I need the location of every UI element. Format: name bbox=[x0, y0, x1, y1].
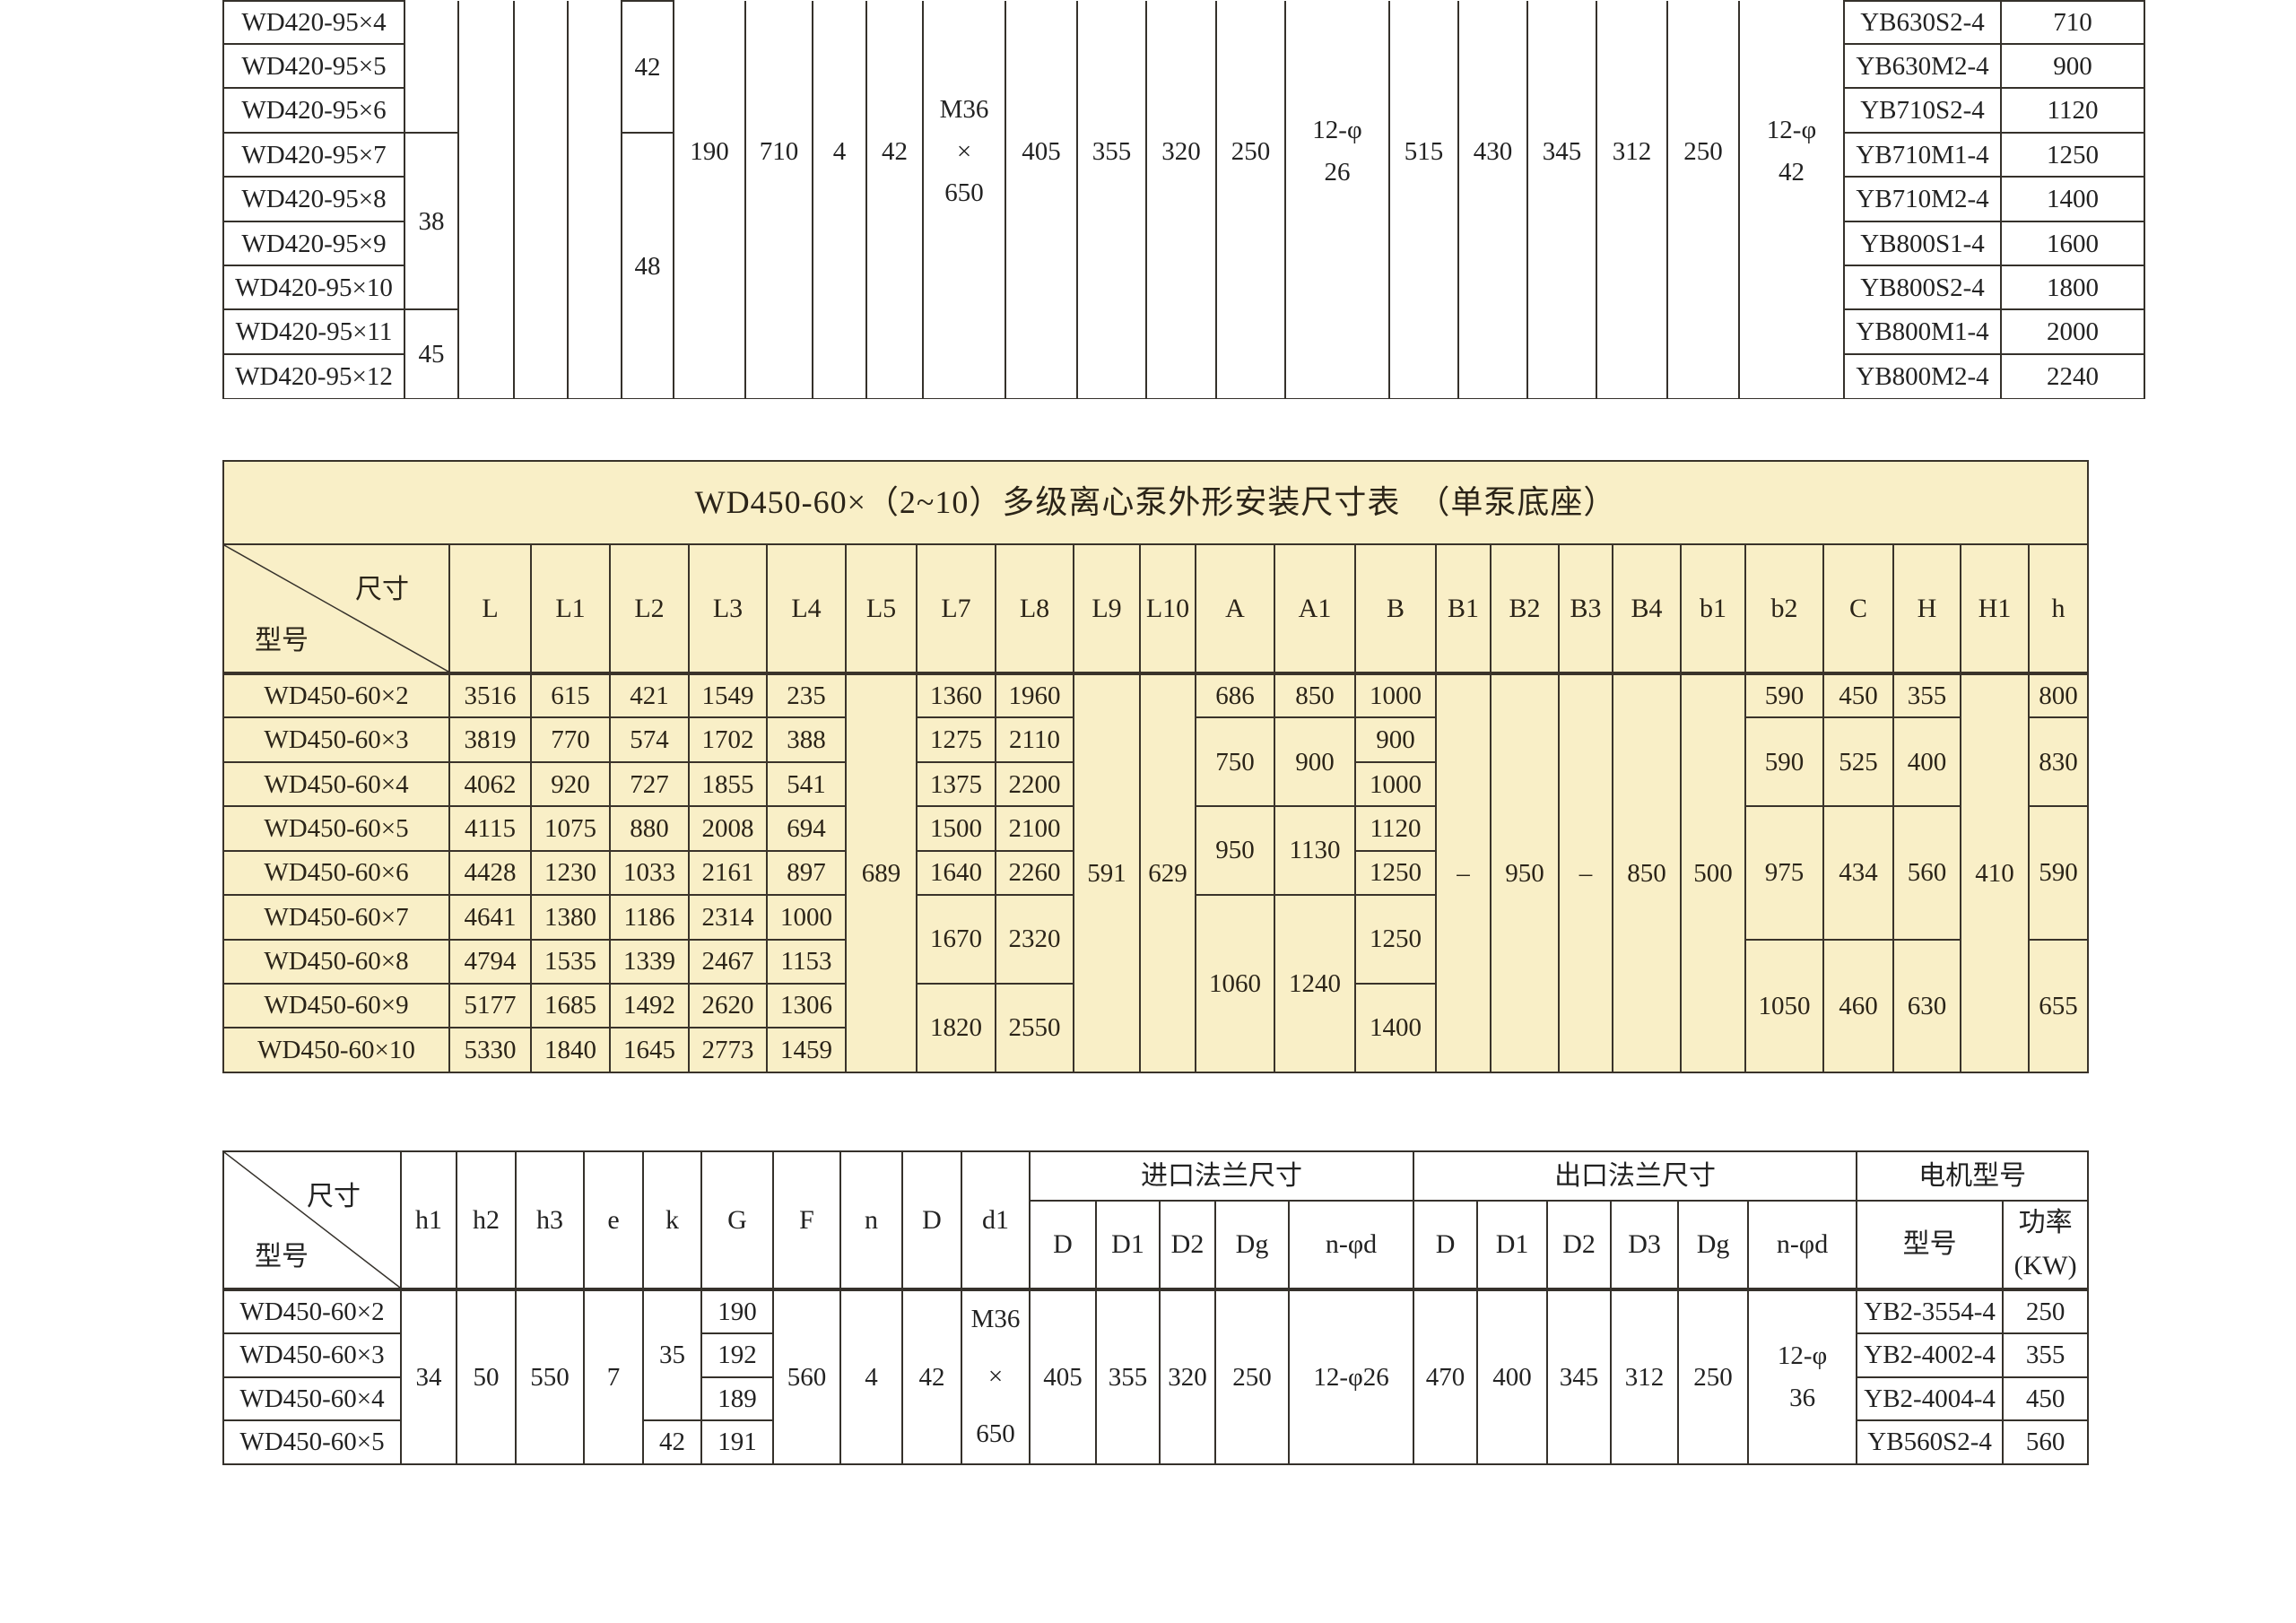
cell-text: 2260 bbox=[1009, 852, 1061, 893]
col-header: L3 bbox=[689, 544, 767, 673]
cell: 3819 bbox=[449, 717, 531, 762]
cell: 2773 bbox=[689, 1028, 767, 1072]
cell: 2100 bbox=[996, 806, 1074, 851]
cell-text: 410 bbox=[1975, 853, 2014, 894]
cell-text: YB800S2-4 bbox=[1860, 267, 1985, 308]
power-cell: 2240 bbox=[2001, 354, 2144, 399]
cell: 355 bbox=[1893, 673, 1961, 717]
cell-text: B1 bbox=[1448, 587, 1479, 630]
cell-text: 1645 bbox=[623, 1029, 675, 1071]
power-cell: 900 bbox=[2001, 44, 2144, 88]
cell-text: 190 bbox=[690, 131, 729, 172]
cell-text: WD450-60×10 bbox=[257, 1029, 415, 1071]
cell-text: B4 bbox=[1631, 587, 1662, 630]
model-cell: WD450-60×2 bbox=[223, 673, 449, 717]
cell-text: 4641 bbox=[465, 897, 517, 938]
cell-text: WD450-60×（2~10）多级离心泵外形安装尺寸表 （单泵底座） bbox=[695, 477, 1617, 529]
cell-text: Dg bbox=[1236, 1223, 1269, 1266]
motor-model-cell: YB800M1-4 bbox=[1844, 309, 2001, 354]
cell-text: 312 bbox=[1613, 131, 1652, 172]
cell-text: k bbox=[665, 1199, 679, 1242]
cell: 2110 bbox=[996, 717, 1074, 762]
cell-text: B bbox=[1387, 587, 1405, 630]
cell-text: 1800 bbox=[2047, 267, 2099, 308]
cell-text: 1820 bbox=[930, 1007, 982, 1048]
cell-text: 388 bbox=[787, 719, 826, 760]
cell-text: YB2-4004-4 bbox=[1864, 1378, 1996, 1419]
cell-text: 560 bbox=[2026, 1421, 2066, 1462]
cell-text: L3 bbox=[713, 587, 743, 630]
cell-text: 12-φ26 bbox=[1312, 109, 1361, 193]
cell-text: 1275 bbox=[930, 719, 982, 760]
cell: 4794 bbox=[449, 940, 531, 984]
cell: 694 bbox=[767, 806, 846, 851]
cell-text: 191 bbox=[717, 1421, 757, 1462]
cell-text: WD420-95×10 bbox=[235, 267, 393, 308]
cell: 4115 bbox=[449, 806, 531, 851]
cell: 1153 bbox=[767, 940, 846, 984]
cell-text: B2 bbox=[1509, 587, 1540, 630]
cell-text: 541 bbox=[787, 764, 826, 805]
col-header: L1 bbox=[531, 544, 610, 673]
model-cell: WD450-60×4 bbox=[223, 762, 449, 806]
cell-text: L bbox=[482, 587, 498, 630]
cell-text: 1375 bbox=[930, 764, 982, 805]
cell: 1186 bbox=[610, 895, 689, 940]
cell-text: 42 bbox=[635, 47, 661, 88]
data-table: WD420-95×442190710442M36×650405355320250… bbox=[222, 0, 2145, 399]
power-cell: 355 bbox=[2003, 1333, 2088, 1376]
motor-model-cell: YB2-4004-4 bbox=[1857, 1377, 2003, 1420]
cell-text: 3819 bbox=[465, 719, 517, 760]
motor-model-cell: YB800S1-4 bbox=[1844, 221, 2001, 265]
col-header: 型号 bbox=[1857, 1201, 2003, 1289]
cell: 388 bbox=[767, 717, 846, 762]
inlet-D-cell: 405 bbox=[1005, 1, 1077, 399]
cell-text: 235 bbox=[787, 675, 826, 716]
inlet-Dg-cell: 250 bbox=[1216, 1, 1285, 399]
cell: 897 bbox=[767, 851, 846, 894]
model-cell: WD420-95×9 bbox=[223, 221, 404, 265]
model-cell: WD450-60×6 bbox=[223, 851, 449, 894]
cell-text: M36×650 bbox=[940, 89, 989, 213]
cell-text: 2000 bbox=[2047, 311, 2099, 352]
n-cell: 4 bbox=[813, 1, 866, 399]
model-cell: WD450-60×9 bbox=[223, 984, 449, 1028]
n-cell: 4 bbox=[840, 1289, 902, 1464]
G-cell: 190 bbox=[701, 1289, 773, 1333]
col-header: B bbox=[1355, 544, 1436, 673]
cell-text: 400 bbox=[1908, 742, 1947, 783]
motor-group-header: 电机型号 bbox=[1857, 1151, 2088, 1201]
cell-text: 1186 bbox=[624, 897, 675, 938]
cell: 5330 bbox=[449, 1028, 531, 1072]
model-cell: WD420-95×7 bbox=[223, 133, 404, 177]
cell-text: YB630S2-4 bbox=[1860, 2, 1985, 43]
cell-text: YB710M2-4 bbox=[1856, 178, 1988, 220]
cell-text: 629 bbox=[1148, 853, 1187, 894]
cell-text: 型号 bbox=[1903, 1223, 1957, 1266]
cell: 4641 bbox=[449, 895, 531, 940]
cell-text: 515 bbox=[1405, 131, 1444, 172]
model-cell: WD420-95×8 bbox=[223, 177, 404, 221]
cell-text: 1670 bbox=[930, 918, 982, 959]
power-cell: 450 bbox=[2003, 1377, 2088, 1420]
cell-text: D1 bbox=[1496, 1223, 1529, 1266]
cell-text: 2314 bbox=[702, 897, 754, 938]
h3-cell: 550 bbox=[516, 1289, 584, 1464]
cell-text: D bbox=[1053, 1223, 1073, 1266]
cell-text: WD420-95×7 bbox=[241, 135, 386, 176]
cell-text: H1 bbox=[1979, 587, 2012, 630]
power-cell: 1250 bbox=[2001, 133, 2144, 177]
col-header: b2 bbox=[1745, 544, 1823, 673]
power-cell: 2000 bbox=[2001, 309, 2144, 354]
col-header: D3 bbox=[1611, 1201, 1678, 1289]
cell: 1645 bbox=[610, 1028, 689, 1072]
cell-text: 710 bbox=[2053, 2, 2092, 43]
cell-text: 189 bbox=[717, 1378, 757, 1419]
cell-text: 2467 bbox=[702, 941, 754, 982]
cell-text: 900 bbox=[1376, 719, 1415, 760]
cell-text: 900 bbox=[1295, 742, 1335, 783]
cell-text: 1050 bbox=[1759, 985, 1811, 1027]
H1-cell: 410 bbox=[1961, 673, 2029, 1072]
col-header: D bbox=[1030, 1201, 1096, 1289]
outlet-D-cell: 515 bbox=[1389, 1, 1458, 399]
col-header: 功率(KW) bbox=[2003, 1201, 2088, 1289]
cell-text: 48 bbox=[635, 246, 661, 287]
col-header: D bbox=[902, 1151, 961, 1289]
cell-text: 560 bbox=[1908, 852, 1947, 893]
cell-text: 进口法兰尺寸 bbox=[1141, 1155, 1302, 1198]
k-cell: 35 bbox=[643, 1289, 701, 1420]
outlet-D2-cell: 345 bbox=[1527, 1, 1596, 399]
cell-text: WD450-60×5 bbox=[239, 1421, 384, 1462]
col-header: L2 bbox=[610, 544, 689, 673]
inlet-flange-group-header: 进口法兰尺寸 bbox=[1030, 1151, 1413, 1201]
inlet-D2-cell: 320 bbox=[1160, 1289, 1215, 1464]
cell-text: 4794 bbox=[465, 941, 517, 982]
cell-text: 2550 bbox=[1009, 1007, 1061, 1048]
col-header: B3 bbox=[1559, 544, 1613, 673]
cell-text: L8 bbox=[1020, 587, 1049, 630]
cell-text: b2 bbox=[1771, 587, 1798, 630]
model-cell: WD450-60×2 bbox=[223, 1289, 401, 1333]
outlet-Dg-cell: 250 bbox=[1678, 1289, 1748, 1464]
power-cell: 1400 bbox=[2001, 177, 2144, 221]
cell-text: 45 bbox=[419, 334, 445, 375]
cell: 1685 bbox=[531, 984, 610, 1028]
outlet-D1-cell: 400 bbox=[1477, 1289, 1547, 1464]
cell-text: WD450-60×2 bbox=[264, 675, 408, 716]
cell: 400 bbox=[1893, 717, 1961, 806]
cell-text: 2110 bbox=[1009, 719, 1060, 760]
model-cell: WD420-95×6 bbox=[223, 88, 404, 133]
cell-text: 1250 bbox=[1370, 918, 1422, 959]
motor-model-cell: YB800S2-4 bbox=[1844, 265, 2001, 309]
outlet-D1-cell: 430 bbox=[1458, 1, 1527, 399]
cell-text: 560 bbox=[787, 1357, 827, 1398]
cell: 460 bbox=[1823, 940, 1893, 1072]
col-header: G bbox=[701, 1151, 773, 1289]
col-header: L7 bbox=[917, 544, 996, 673]
cell: 4428 bbox=[449, 851, 531, 894]
cell-text: 4115 bbox=[465, 808, 516, 849]
cell: 1250 bbox=[1355, 851, 1436, 894]
outlet-D-cell: 470 bbox=[1413, 1289, 1477, 1464]
inlet-Dg-cell: 250 bbox=[1215, 1289, 1289, 1464]
cell-text: h2 bbox=[473, 1199, 500, 1242]
cell-text: YB560S2-4 bbox=[1867, 1421, 1992, 1462]
cell-text: n bbox=[865, 1199, 878, 1242]
col-header: L5 bbox=[846, 544, 917, 673]
col-header: h bbox=[2029, 544, 2088, 673]
cell-text: 3516 bbox=[465, 675, 517, 716]
cell-text: 590 bbox=[1765, 742, 1805, 783]
cell-text: 710 bbox=[760, 131, 799, 172]
cell-text: D2 bbox=[1171, 1223, 1205, 1266]
col-header: L9 bbox=[1074, 544, 1140, 673]
cell-text: 4062 bbox=[465, 764, 517, 805]
corner-label-model: 型号 bbox=[255, 1234, 309, 1273]
col-header: D2 bbox=[1160, 1201, 1215, 1289]
cell: 630 bbox=[1893, 940, 1961, 1072]
cell-text: h bbox=[2052, 587, 2066, 630]
motor-model-cell: YB2-4002-4 bbox=[1857, 1333, 2003, 1376]
cell: 525 bbox=[1823, 717, 1893, 806]
cell-text: WD450-60×5 bbox=[264, 808, 408, 849]
cell-text: WD450-60×4 bbox=[264, 764, 408, 805]
cell-text: 2161 bbox=[702, 852, 754, 893]
cell: 830 bbox=[2029, 717, 2088, 806]
col-header: b1 bbox=[1681, 544, 1745, 673]
cell-text: 590 bbox=[1765, 675, 1805, 716]
cell-text: WD450-60×4 bbox=[239, 1378, 384, 1419]
cell-text: e bbox=[607, 1199, 619, 1242]
model-cell: WD450-60×5 bbox=[223, 1420, 401, 1463]
cell-text: 355 bbox=[1092, 131, 1132, 172]
G-cell: 190 bbox=[674, 1, 745, 399]
col-header: C bbox=[1823, 544, 1893, 673]
corner-label-model: 型号 bbox=[255, 618, 309, 657]
model-cell: WD450-60×3 bbox=[223, 717, 449, 762]
cell-text: 4 bbox=[865, 1357, 878, 1398]
corner-header-cell: 尺寸型号 bbox=[223, 1151, 401, 1289]
cell-text: 出口法兰尺寸 bbox=[1554, 1155, 1716, 1198]
cell-text: 1400 bbox=[2047, 178, 2099, 220]
inlet-nphid-cell: 12-φ26 bbox=[1285, 1, 1389, 399]
cell-text: 1075 bbox=[544, 808, 596, 849]
power-cell: 1120 bbox=[2001, 88, 2144, 133]
cell: 2320 bbox=[996, 895, 1074, 984]
cell-text: WD450-60×3 bbox=[264, 719, 408, 760]
cell: 900 bbox=[1355, 717, 1436, 762]
cell-text: h3 bbox=[536, 1199, 563, 1242]
cell-text: 2200 bbox=[1009, 764, 1061, 805]
cell: 1380 bbox=[531, 895, 610, 940]
cell-text: YB800S1-4 bbox=[1860, 223, 1985, 265]
col-header: D1 bbox=[1477, 1201, 1547, 1289]
cell-text: 1400 bbox=[1370, 1007, 1422, 1048]
cell-text: 1459 bbox=[780, 1029, 832, 1071]
motor-model-cell: YB630S2-4 bbox=[1844, 1, 2001, 44]
cell-text: 470 bbox=[1426, 1357, 1465, 1398]
model-cell: WD420-95×4 bbox=[223, 1, 404, 44]
power-cell: 1800 bbox=[2001, 265, 2144, 309]
cell-text: 630 bbox=[1908, 985, 1947, 1027]
cell: 1240 bbox=[1274, 895, 1355, 1072]
col-header: Dg bbox=[1215, 1201, 1289, 1289]
cell-text: WD420-95×4 bbox=[241, 2, 386, 43]
col-header: B2 bbox=[1491, 544, 1559, 673]
cell-text: b1 bbox=[1700, 587, 1726, 630]
cell-text: WD450-60×9 bbox=[264, 985, 408, 1026]
cell-text: 250 bbox=[1231, 131, 1271, 172]
cell-text: 1549 bbox=[702, 675, 754, 716]
cell-text: 5177 bbox=[465, 985, 517, 1026]
cell-text: 1060 bbox=[1209, 963, 1261, 1004]
cell-text: 2008 bbox=[702, 808, 754, 849]
cell: 900 bbox=[1274, 717, 1355, 806]
col-header: n-φd bbox=[1748, 1201, 1857, 1289]
cell: 2260 bbox=[996, 851, 1074, 894]
middle-table-title: WD450-60×（2~10）多级离心泵外形安装尺寸表 （单泵底座） bbox=[223, 461, 2088, 544]
e-cell: 7 bbox=[584, 1289, 643, 1464]
cell: 2467 bbox=[689, 940, 767, 984]
outlet-flange-group-header: 出口法兰尺寸 bbox=[1413, 1151, 1857, 1201]
cell: 450 bbox=[1823, 673, 1893, 717]
model-cell: WD420-95×5 bbox=[223, 44, 404, 88]
corner-label-dimension: 尺寸 bbox=[355, 567, 409, 606]
cell-text: 12-φ26 bbox=[1313, 1357, 1388, 1398]
cell-text: 1855 bbox=[702, 764, 754, 805]
cell: 2550 bbox=[996, 984, 1074, 1072]
cell: 850 bbox=[1274, 673, 1355, 717]
cell: 1855 bbox=[689, 762, 767, 806]
diagonal-divider-line bbox=[224, 1152, 400, 1288]
cell-text: 1240 bbox=[1289, 963, 1341, 1004]
model-cell: WD450-60×8 bbox=[223, 940, 449, 984]
d1-cell: M36×650 bbox=[961, 1289, 1030, 1464]
col-header: n-φd bbox=[1289, 1201, 1413, 1289]
cell: 1130 bbox=[1274, 806, 1355, 894]
cell-text: 1339 bbox=[623, 941, 675, 982]
cell-text: 1120 bbox=[2048, 90, 2099, 131]
k-cell: 42 bbox=[622, 1, 674, 133]
cell-text: H bbox=[1918, 587, 1937, 630]
outlet-D2-cell: 345 bbox=[1547, 1289, 1611, 1464]
h2-cell bbox=[458, 1, 514, 399]
G-cell: 189 bbox=[701, 1377, 773, 1420]
cell: 727 bbox=[610, 762, 689, 806]
cell-text: 4428 bbox=[465, 852, 517, 893]
cell: 1820 bbox=[917, 984, 996, 1072]
cell-text: 590 bbox=[2039, 852, 2078, 893]
G-cell: 191 bbox=[701, 1420, 773, 1463]
cell: 1033 bbox=[610, 851, 689, 894]
power-cell: 560 bbox=[2003, 1420, 2088, 1463]
motor-model-cell: YB710M2-4 bbox=[1844, 177, 2001, 221]
B3-cell: – bbox=[1559, 673, 1613, 1072]
cell: 1000 bbox=[767, 895, 846, 940]
cell-text: 355 bbox=[2026, 1334, 2066, 1376]
cell-text: – bbox=[1579, 853, 1593, 894]
cell-text: 525 bbox=[1839, 742, 1878, 783]
cell: 1275 bbox=[917, 717, 996, 762]
power-cell: 710 bbox=[2001, 1, 2144, 44]
cell: 1000 bbox=[1355, 673, 1436, 717]
model-cell: WD420-95×10 bbox=[223, 265, 404, 309]
cell: 1640 bbox=[917, 851, 996, 894]
cell-text: L5 bbox=[866, 587, 896, 630]
cell: 1050 bbox=[1745, 940, 1823, 1072]
cell-text: D bbox=[922, 1199, 942, 1242]
cell-text: WD450-60×7 bbox=[264, 897, 408, 938]
cell-text: 450 bbox=[2026, 1378, 2066, 1419]
cell: 560 bbox=[1893, 806, 1961, 939]
L9-cell: 591 bbox=[1074, 673, 1140, 1072]
k-cell: 42 bbox=[643, 1420, 701, 1463]
col-header: L10 bbox=[1140, 544, 1196, 673]
cell: 434 bbox=[1823, 806, 1893, 939]
h3-cell bbox=[514, 1, 568, 399]
cell-text: 34 bbox=[416, 1357, 442, 1398]
cell: 1492 bbox=[610, 984, 689, 1028]
cell-text: L10 bbox=[1146, 587, 1189, 630]
cell: 1250 bbox=[1355, 895, 1436, 984]
cell-text: D3 bbox=[1628, 1223, 1661, 1266]
cell-text: WD420-95×12 bbox=[235, 356, 393, 397]
wd420-95-dimension-table-continued: WD420-95×442190710442M36×650405355320250… bbox=[222, 0, 2151, 399]
e-cell bbox=[568, 1, 622, 399]
col-header: A bbox=[1196, 544, 1274, 673]
cell-text: 897 bbox=[787, 852, 826, 893]
cell: 800 bbox=[2029, 673, 2088, 717]
cell-text: L1 bbox=[555, 587, 585, 630]
cell: 1535 bbox=[531, 940, 610, 984]
table-row: WD450-60×2351661542115492356891360196059… bbox=[223, 673, 2088, 717]
cell-text: n-φd bbox=[1777, 1223, 1828, 1266]
cell: 1339 bbox=[610, 940, 689, 984]
cell-text: 1033 bbox=[623, 852, 675, 893]
cell-text: 950 bbox=[1505, 853, 1544, 894]
cell-text: 694 bbox=[787, 808, 826, 849]
model-cell: WD450-60×5 bbox=[223, 806, 449, 851]
cell-text: D1 bbox=[1111, 1223, 1144, 1266]
cell: 1360 bbox=[917, 673, 996, 717]
cell: 975 bbox=[1745, 806, 1823, 939]
B4-cell: 850 bbox=[1613, 673, 1681, 1072]
cell-text: 1000 bbox=[780, 897, 832, 938]
col-header: k bbox=[643, 1151, 701, 1289]
cell-text: 686 bbox=[1215, 675, 1255, 716]
cell-text: YB710S2-4 bbox=[1860, 90, 1985, 131]
cell-text: 12-φ42 bbox=[1767, 109, 1816, 193]
cell-text: 1380 bbox=[544, 897, 596, 938]
cell: 2314 bbox=[689, 895, 767, 940]
F-cell: 710 bbox=[745, 1, 813, 399]
cell-text: L2 bbox=[634, 587, 664, 630]
cell-text: G bbox=[727, 1199, 747, 1242]
cell: 1375 bbox=[917, 762, 996, 806]
cell-text: 1600 bbox=[2047, 223, 2099, 265]
cell: 3516 bbox=[449, 673, 531, 717]
cell-text: d1 bbox=[982, 1199, 1009, 1242]
corner-header-cell: 尺寸型号 bbox=[223, 544, 449, 673]
D-cell: 42 bbox=[866, 1, 923, 399]
cell: 615 bbox=[531, 673, 610, 717]
